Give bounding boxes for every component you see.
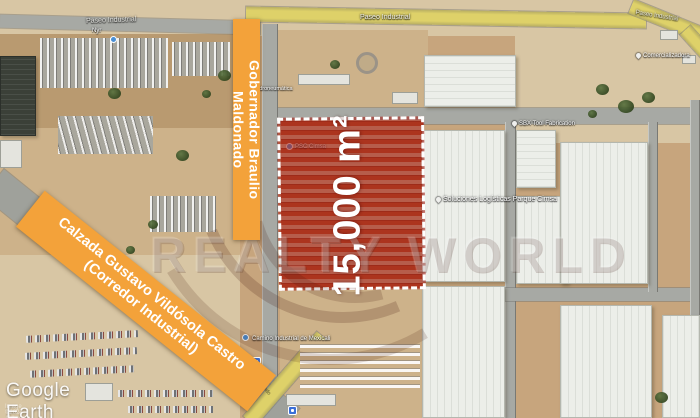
warehouse-hall-b2 [560,305,652,418]
round-structure [356,52,378,74]
tree-icon [330,60,340,69]
right-shed-1 [660,30,678,40]
warehouse-top [424,55,516,107]
poi-label-text: Soluciones Logísticas Parque Cimsa [443,196,557,203]
poi-marker-icon[interactable] [242,334,249,341]
bottom-center-shed [286,394,336,406]
poi-label-logistics: Soluciones Logísticas Parque Cimsa [436,196,443,203]
transit-stop-icon[interactable] [288,406,297,415]
warehouse-far-right [662,315,700,418]
tree-icon [176,150,189,161]
warehouse-hall-a1 [422,130,505,282]
trailer-yard-below-parcel [300,340,420,388]
parking-row-5 [128,406,213,413]
tree-icon [202,90,211,98]
road-right-vertical [648,122,658,292]
tree-icon [126,246,135,254]
warehouse-small [516,130,556,188]
trailer-yard-1 [40,38,168,88]
center-shed-2 [392,92,418,104]
road-label-text: Paseo Industrial [360,14,410,21]
satellite-map: Paseo Industrial Paseo Industrial Paseo … [0,0,700,418]
road-gobernador [262,24,278,418]
poi-label-text: Comercializadora [643,53,690,59]
road-between-halls [505,122,516,418]
white-roof-building [85,383,113,401]
trailer-yard-3 [150,196,216,232]
tree-icon [642,92,655,103]
parking-row-4 [118,390,213,397]
center-shed-row [298,74,350,85]
tree-icon [218,70,231,81]
warehouse-hall-a2 [422,286,505,418]
warehouse-hall-b1 [560,142,648,284]
small-shed [0,140,22,168]
tree-icon [618,100,634,113]
poi-label-text: Camino Industrial de Mexicali [252,336,330,342]
tree-icon [655,392,668,403]
poi-label-tool: SBX Tool Fabrication [512,121,519,127]
map-pin-icon[interactable] [511,120,518,127]
tree-icon [596,84,609,95]
road-right-cross [505,288,700,301]
tree-icon [108,88,121,99]
trailer-yard-2 [58,116,153,154]
tree-icon [588,110,597,118]
tree-icon [148,220,158,229]
map-pin-icon[interactable] [435,196,442,203]
street-banner-gobernador: Gobernador Braulio Maldonado [233,19,260,240]
map-pin-icon[interactable] [635,52,642,59]
highlighted-parcel[interactable] [277,116,426,291]
dark-warehouse [0,56,36,136]
poi-marker-icon[interactable] [110,36,117,43]
imagery-credit-text: Image ©2024 Airbus [5,404,23,418]
street-banner-text: Gobernador Braulio Maldonado [231,19,263,240]
poi-label-text: SBX Tool Fabrication [519,121,575,127]
poi-label-comercial: Comercializadora [636,53,643,59]
poi-label-text: Nyr [92,28,101,34]
